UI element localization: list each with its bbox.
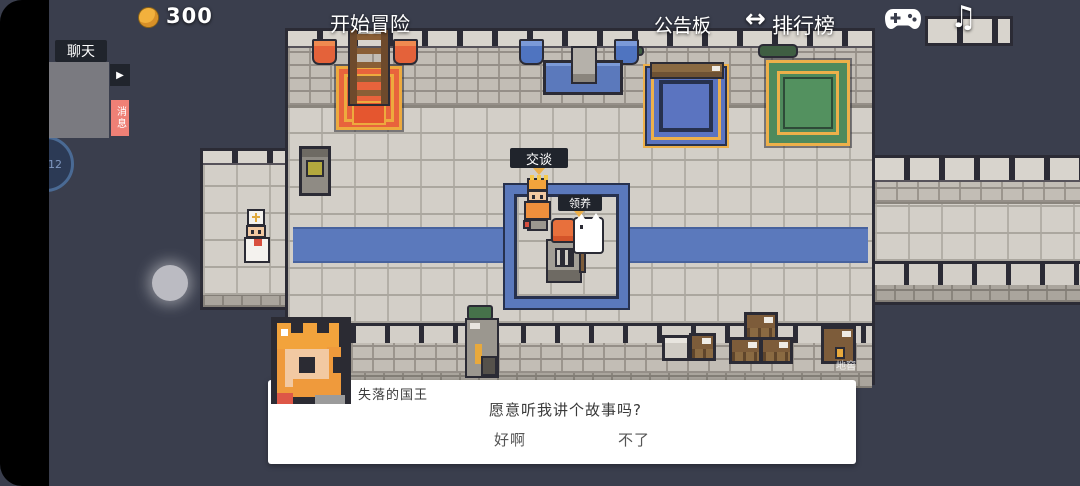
- play-icon: ▶: [116, 70, 124, 81]
- stone-box: [662, 335, 690, 361]
- adopt-arrow-icon: [574, 211, 584, 217]
- talk-arrow-icon: [533, 168, 545, 175]
- dialog-option-no[interactable]: 不了: [618, 429, 650, 450]
- chat-expand-button[interactable]: ▶: [110, 64, 130, 86]
- right-corridor-floor: [875, 204, 1080, 261]
- chat-title-text: 聊天: [67, 41, 95, 61]
- wooden-bench: [650, 62, 724, 79]
- flower-pot: [393, 39, 418, 65]
- well-stone: [465, 318, 499, 378]
- gamepad-icon: [885, 6, 921, 32]
- adopt-label[interactable]: 领养: [558, 195, 602, 211]
- crate: [689, 333, 716, 361]
- crate: [729, 337, 762, 364]
- priest-body: [244, 237, 270, 263]
- gamepad-button[interactable]: [885, 6, 921, 32]
- sign-kiosk[interactable]: [299, 146, 331, 196]
- cellar-label: 地窖: [836, 357, 856, 372]
- kiosk-screen: [306, 160, 324, 177]
- talk-label[interactable]: 交谈: [510, 148, 568, 168]
- king-boot: [523, 220, 531, 229]
- coin-icon: [139, 8, 158, 27]
- joystick-dot[interactable]: [152, 265, 188, 301]
- board-button[interactable]: 公告板: [654, 11, 711, 38]
- carpet-navy-border: [659, 80, 713, 132]
- well[interactable]: [463, 305, 503, 379]
- adventure-button[interactable]: 开始冒险: [330, 8, 410, 37]
- messages-tab[interactable]: 消息: [111, 100, 129, 136]
- ladder[interactable]: [350, 30, 388, 104]
- bench-highlight: [712, 66, 720, 71]
- messages-tab-text: 消息: [113, 106, 128, 130]
- coin-count: 300: [166, 4, 213, 28]
- fountain-pedestal: [571, 46, 597, 84]
- clock-time: 12: [48, 158, 62, 171]
- dialog-box: [268, 380, 856, 464]
- music-button[interactable]: ♫: [950, 0, 977, 35]
- chat-window[interactable]: [49, 62, 109, 138]
- furnace-handle: [579, 251, 586, 273]
- ranking-carpet[interactable]: [766, 60, 850, 146]
- crate: [760, 337, 793, 364]
- furnace-base: [548, 270, 580, 281]
- king-portrait: [271, 317, 351, 404]
- left-corridor-battlement: [203, 151, 289, 165]
- left-corridor-base: [203, 295, 289, 307]
- priest-collar: [254, 239, 262, 246]
- priest-npc[interactable]: [242, 209, 272, 265]
- swap-arrow-icon: ↔: [745, 4, 766, 33]
- talk-label-text: 交谈: [526, 149, 552, 168]
- kiosk-cap: [302, 149, 328, 157]
- white-cat[interactable]: [573, 217, 604, 254]
- game-screen: 交谈 领养 地窖 12: [0, 0, 1080, 486]
- crate: [744, 312, 778, 340]
- king-npc[interactable]: [521, 176, 554, 232]
- screen-bezel: [0, 0, 49, 486]
- bush-icon: [758, 44, 798, 58]
- ranking-button[interactable]: 排行榜: [772, 10, 835, 40]
- dialog-option-yes[interactable]: 好啊: [494, 429, 526, 450]
- right-corridor: [875, 155, 1080, 305]
- adopt-label-text: 领养: [569, 195, 591, 211]
- priest-hat: [247, 209, 265, 226]
- dialog-speaker-name: 失落的国王: [358, 384, 428, 403]
- furnace-grill: [555, 248, 574, 267]
- flower-pot: [312, 39, 337, 65]
- cross-icon-bar: [252, 216, 260, 218]
- carpet-center-patch: [352, 101, 386, 125]
- carpet-core: [783, 77, 833, 129]
- right-corridor-top-wall: [875, 182, 1080, 204]
- dialog-text: 愿意听我讲个故事吗?: [489, 399, 642, 420]
- flower-pot: [519, 39, 544, 65]
- chat-title: 聊天: [55, 40, 107, 62]
- king-body: [524, 201, 551, 220]
- right-corridor-top-battlement: [875, 158, 1080, 182]
- right-corridor-bottom-battlement: [875, 261, 1080, 285]
- right-corridor-bottom-wall: [875, 285, 1080, 302]
- well-opening: [481, 356, 497, 376]
